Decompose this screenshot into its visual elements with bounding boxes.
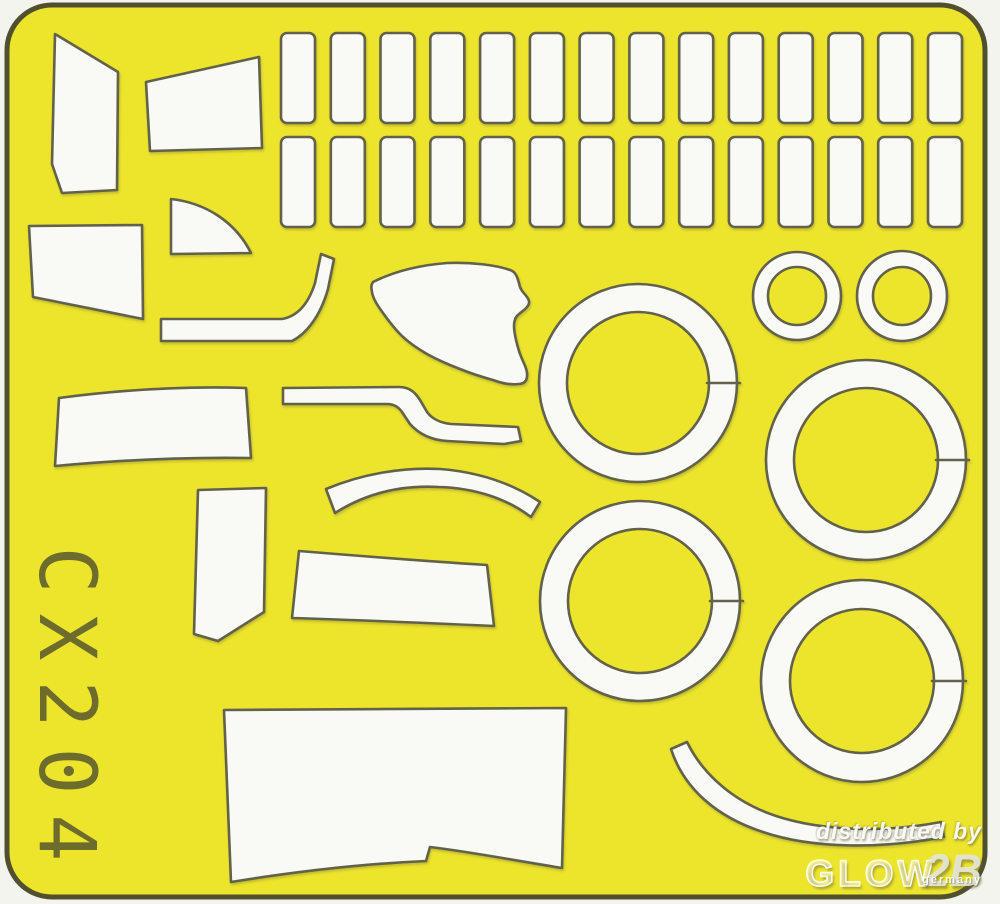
bottom-panel-mask	[224, 708, 566, 882]
strip-mask-r1-c8	[629, 33, 663, 123]
strip-mask-r2-c6	[530, 137, 564, 227]
mid-strip-mask	[292, 551, 494, 626]
strip-mask-r2-c3	[381, 137, 415, 227]
strip-mask-r1-c1	[281, 33, 315, 123]
strip-mask-r2-c7	[580, 137, 614, 227]
strip-mask-r2-c5	[480, 137, 514, 227]
small-ring-2-inner	[873, 267, 931, 325]
large-ring-4-inner	[790, 609, 934, 753]
large-ring-1-inner	[567, 312, 709, 454]
strip-mask-r2-c9	[679, 137, 713, 227]
strip-mask-r1-c11	[779, 33, 813, 123]
strip-mask-r1-c4	[430, 33, 464, 123]
long-left-strip-mask	[55, 387, 251, 466]
strip-mask-r2-c4	[430, 137, 464, 227]
strip-mask-r2-c8	[629, 137, 663, 227]
strip-mask-r2-c12	[829, 137, 863, 227]
strip-mask-r1-c14	[928, 33, 962, 123]
strip-mask-r2-c14	[928, 137, 962, 227]
strip-mask-r1-c13	[878, 33, 912, 123]
strip-mask-r1-c9	[679, 33, 713, 123]
strip-mask-r2-c2	[331, 137, 365, 227]
product-code-label: CX204	[27, 547, 105, 882]
strip-mask-r2-c11	[779, 137, 813, 227]
small-ring-1-inner	[768, 267, 826, 325]
strip-mask-r2-c1	[281, 137, 315, 227]
large-ring-2-inner	[794, 388, 938, 532]
mask-sheet-photo: CX204 distributed by GLOW2B germany	[0, 0, 1000, 904]
strip-mask-r1-c10	[729, 33, 763, 123]
tall-blade-mask	[194, 488, 266, 641]
strip-mask-r1-c6	[530, 33, 564, 123]
mask-sheet-svg	[0, 0, 1000, 904]
strip-mask-r1-c2	[331, 33, 365, 123]
strip-mask-r1-c3	[381, 33, 415, 123]
strip-mask-r2-c10	[729, 137, 763, 227]
strip-mask-r1-c12	[829, 33, 863, 123]
strip-mask-r1-c5	[480, 33, 514, 123]
strip-mask-r1-c7	[580, 33, 614, 123]
strip-mask-r2-c13	[878, 137, 912, 227]
large-ring-3-inner	[568, 529, 712, 673]
